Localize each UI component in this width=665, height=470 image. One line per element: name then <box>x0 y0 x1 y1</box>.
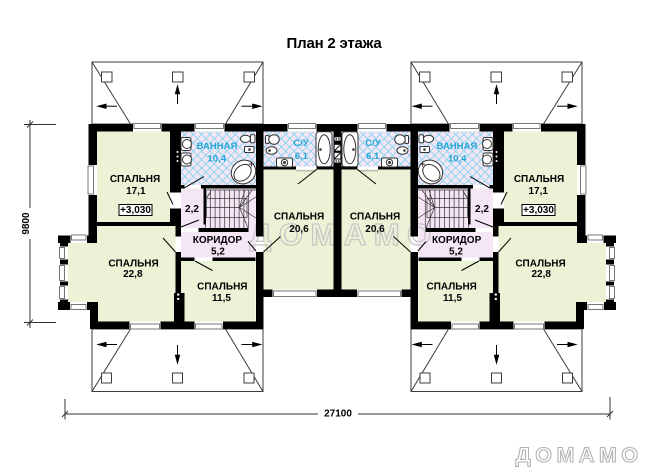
svg-text:СПАЛЬНЯ: СПАЛЬНЯ <box>274 212 324 223</box>
svg-text:План 2 этажа: План 2 этажа <box>287 35 383 52</box>
svg-text:22,8: 22,8 <box>531 269 551 280</box>
svg-text:+3,030: +3,030 <box>523 205 554 216</box>
svg-text:СПАЛЬНЯ: СПАЛЬНЯ <box>108 259 158 270</box>
svg-text:20,6: 20,6 <box>365 224 385 235</box>
svg-text:11,5: 11,5 <box>212 293 231 304</box>
svg-text:22,8: 22,8 <box>123 269 143 280</box>
svg-text:10,4: 10,4 <box>448 153 467 164</box>
svg-text:СПАЛЬНЯ: СПАЛЬНЯ <box>110 174 160 185</box>
svg-text:2,2: 2,2 <box>185 204 199 215</box>
svg-text:6,1: 6,1 <box>366 151 380 162</box>
svg-text:ВАННАЯ: ВАННАЯ <box>437 141 478 152</box>
svg-text:С/У: С/У <box>365 138 381 149</box>
svg-text:СПАЛЬНЯ: СПАЛЬНЯ <box>197 282 247 293</box>
svg-text:6,1: 6,1 <box>295 151 309 162</box>
svg-text:ВАННАЯ: ВАННАЯ <box>197 141 238 152</box>
svg-text:17,1: 17,1 <box>528 186 548 197</box>
svg-text:17,1: 17,1 <box>126 186 146 197</box>
svg-text:11,5: 11,5 <box>443 293 462 304</box>
svg-text:СПАЛЬНЯ: СПАЛЬНЯ <box>515 259 565 270</box>
svg-text:СПАЛЬНЯ: СПАЛЬНЯ <box>427 282 477 293</box>
svg-text:КОРИДОР: КОРИДОР <box>432 235 482 246</box>
svg-text:9800: 9800 <box>21 212 32 235</box>
svg-text:27100: 27100 <box>324 409 352 420</box>
svg-text:СПАЛЬНЯ: СПАЛЬНЯ <box>350 212 400 223</box>
svg-text:ДОМАМО: ДОМАМО <box>515 443 642 467</box>
svg-text:С/У: С/У <box>293 138 309 149</box>
svg-text:2,2: 2,2 <box>475 204 489 215</box>
svg-text:+3,030: +3,030 <box>120 205 151 216</box>
svg-text:КОРИДОР: КОРИДОР <box>193 235 243 246</box>
svg-text:10,4: 10,4 <box>208 153 227 164</box>
svg-text:5,2: 5,2 <box>211 247 225 258</box>
svg-text:5,2: 5,2 <box>449 247 463 258</box>
svg-text:20,6: 20,6 <box>289 224 309 235</box>
svg-text:СПАЛЬНЯ: СПАЛЬНЯ <box>514 174 564 185</box>
